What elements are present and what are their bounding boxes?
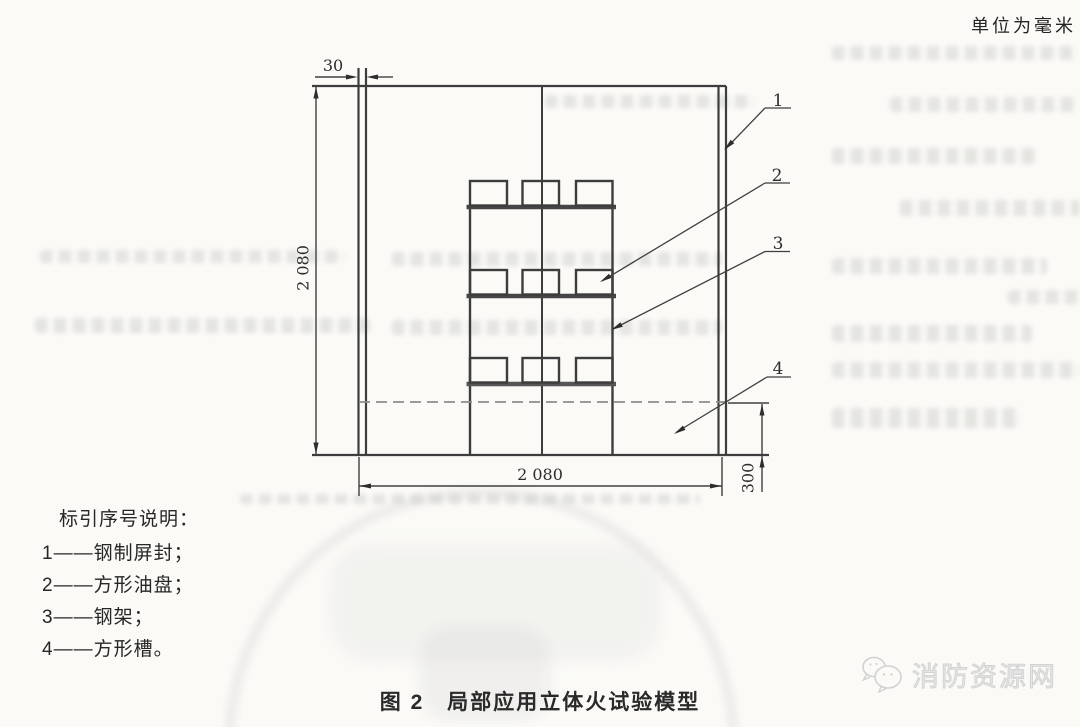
- oil-pan: [470, 358, 507, 383]
- bleed-through-artifact: [832, 46, 1078, 60]
- document-page: 单位为毫米: [0, 0, 1080, 727]
- oil-pan: [523, 358, 560, 383]
- watermark: 消防资源网: [860, 653, 1057, 695]
- wechat-icon: [860, 653, 906, 695]
- callout-4-label: 4: [773, 359, 784, 379]
- callout-2-label: 2: [772, 166, 783, 186]
- bleed-through-artifact: [832, 325, 1032, 342]
- oil-pan: [576, 358, 613, 383]
- callout-1-label: 1: [773, 91, 784, 111]
- dim-wall-thickness: 30: [315, 56, 393, 80]
- oil-pan: [470, 270, 507, 295]
- unit-note: 单位为毫米: [971, 12, 1076, 38]
- callout-4: 4: [674, 359, 791, 434]
- callout-2: 2: [600, 166, 790, 282]
- dim-height: 2 080: [294, 87, 319, 454]
- bleed-through-artifact: [832, 148, 1037, 164]
- bleed-through-artifact: [900, 200, 1080, 216]
- legend-item-2: 2——方形油盘；: [42, 570, 199, 602]
- dim-trough-depth: 300: [728, 403, 769, 493]
- oil-pan: [576, 181, 613, 206]
- legend-title: 标引序号说明：: [59, 508, 199, 532]
- callout-leaders: 1 2 3 4: [600, 91, 791, 434]
- oil-pan: [523, 181, 560, 206]
- bleed-through-artifact: [1008, 290, 1080, 304]
- callout-3: 3: [611, 234, 790, 330]
- dim-trough-depth-value: 300: [739, 463, 758, 494]
- oil-pan: [523, 270, 560, 295]
- steel-screen-enclosure: [312, 68, 769, 455]
- oil-pan: [576, 270, 613, 295]
- bleed-through-artifact: [832, 258, 1047, 274]
- legend-item-1: 1——钢制屏封；: [42, 538, 199, 570]
- bleed-through-emblem-core: [330, 545, 660, 660]
- bleed-through-artifact: [832, 408, 1022, 428]
- dim-width-value: 2 080: [517, 465, 563, 484]
- bleed-through-artifact: [832, 362, 1080, 378]
- legend: 标引序号说明： 1——钢制屏封； 2——方形油盘； 3——钢架； 4——方形槽。: [42, 508, 199, 666]
- figure-caption: 图 2 局部应用立体火试验模型: [280, 686, 800, 716]
- technical-drawing: 30 2 080 2 080 300: [280, 40, 800, 510]
- watermark-text: 消防资源网: [912, 655, 1057, 694]
- dim-wall-thickness-value: 30: [323, 56, 343, 75]
- legend-item-3: 3——钢架；: [42, 602, 199, 634]
- callout-3-label: 3: [773, 234, 784, 254]
- bleed-through-artifact: [890, 97, 1080, 112]
- dim-height-value: 2 080: [294, 245, 313, 291]
- dim-width: 2 080: [359, 457, 722, 496]
- callout-1: 1: [724, 91, 791, 150]
- oil-pan: [470, 181, 507, 206]
- legend-item-4: 4——方形槽。: [42, 634, 199, 666]
